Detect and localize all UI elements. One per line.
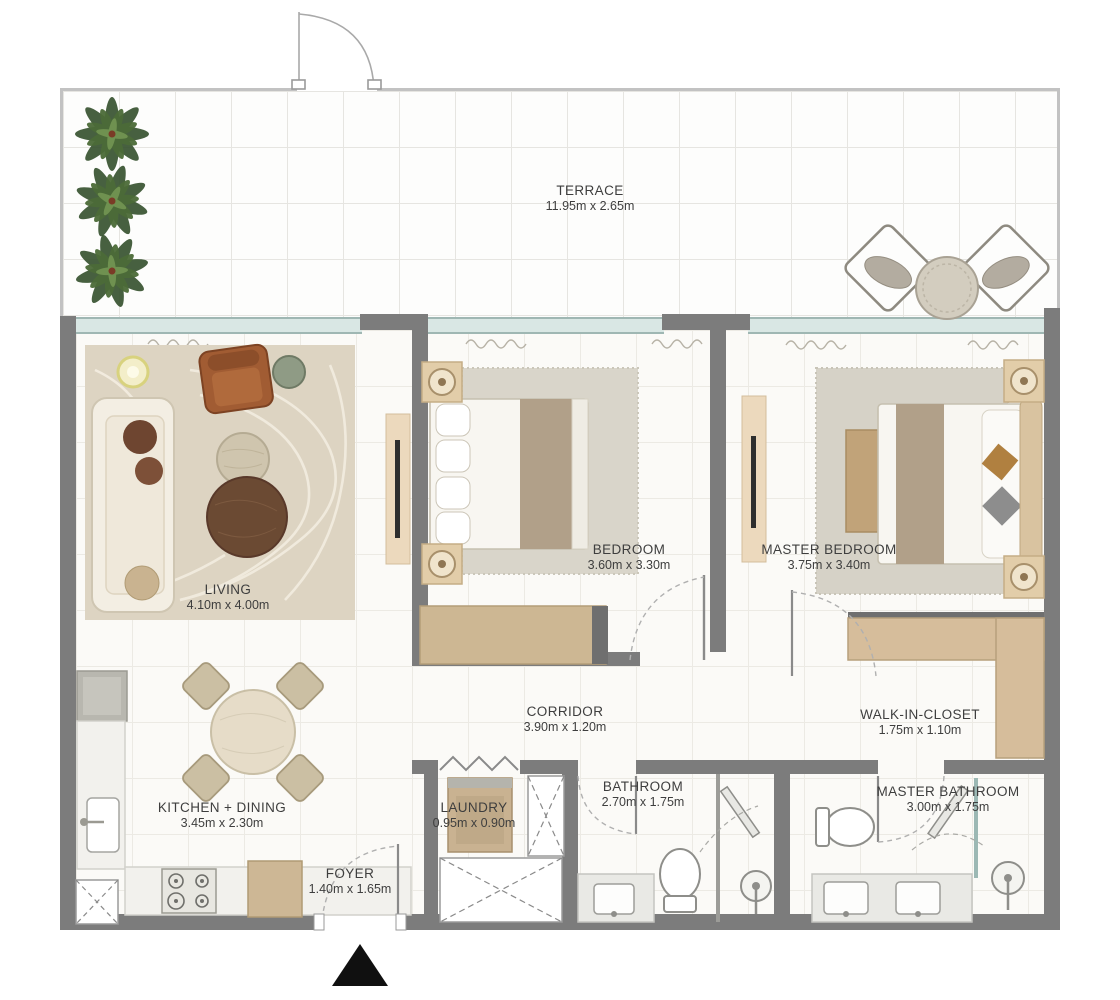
tv-panel	[742, 396, 766, 562]
dresser	[420, 606, 608, 664]
tv-icon	[751, 436, 756, 528]
nightstand	[1004, 556, 1044, 598]
headboard	[1020, 398, 1042, 570]
sofa-pillow	[125, 566, 159, 600]
terrace-table	[916, 257, 978, 319]
master-vanity	[812, 874, 972, 922]
nightstand	[422, 362, 462, 402]
plant-icon	[75, 97, 149, 171]
tv-icon	[395, 440, 400, 538]
fridge	[77, 671, 127, 721]
floor-plan: TERRACE 11.95m x 2.65m LIVING 4.10m x 4.…	[0, 0, 1120, 1000]
side-table	[273, 356, 305, 388]
room-label-corridor: CORRIDOR 3.90m x 1.20m	[524, 704, 607, 734]
terrace-door	[292, 12, 381, 89]
sofa-pillow	[123, 420, 157, 454]
armchair	[198, 344, 274, 415]
room-label-walk-in-closet: WALK-IN-CLOSET 1.75m x 1.10m	[860, 707, 980, 737]
master-bedroom-door	[792, 590, 876, 676]
sofa	[92, 398, 174, 612]
bed	[430, 399, 588, 549]
nightstand	[1004, 360, 1044, 402]
room-label-living: LIVING 4.10m x 4.00m	[187, 582, 270, 612]
stove	[162, 869, 216, 913]
entrance-marker-icon	[332, 944, 388, 986]
bed-bench	[846, 430, 878, 532]
bathroom-vanity	[578, 874, 654, 922]
master-bed	[878, 398, 1042, 570]
plant-icon	[67, 226, 157, 316]
room-label-foyer: FOYER 1.40m x 1.65m	[309, 866, 392, 896]
kitchen-cabinet	[248, 861, 302, 917]
tv-panel	[386, 414, 410, 564]
toilet	[660, 849, 700, 912]
room-label-terrace: TERRACE 11.95m x 2.65m	[546, 183, 635, 213]
room-label-bedroom: BEDROOM 3.60m x 3.30m	[588, 542, 671, 572]
shower	[700, 774, 771, 922]
bedroom-door	[630, 575, 704, 660]
shaft-box	[76, 880, 118, 924]
room-label-kitchen-dining: KITCHEN + DINING 3.45m x 2.30m	[158, 800, 286, 830]
floor-lamp	[118, 357, 148, 387]
room-label-master-bathroom: MASTER BATHROOM 3.00m x 1.75m	[876, 784, 1019, 814]
sofa-pillow	[135, 457, 163, 485]
laundry-bifold-door	[440, 757, 518, 770]
room-label-master-bedroom: MASTER BEDROOM 3.75m x 3.40m	[761, 542, 896, 572]
furniture-layer	[0, 0, 1120, 1000]
room-label-bathroom: BATHROOM 2.70m x 1.75m	[602, 779, 685, 809]
dining-table	[211, 690, 295, 774]
toilet	[816, 808, 874, 846]
room-label-laundry: LAUNDRY 0.95m x 0.90m	[433, 800, 516, 830]
nightstand	[422, 544, 462, 584]
